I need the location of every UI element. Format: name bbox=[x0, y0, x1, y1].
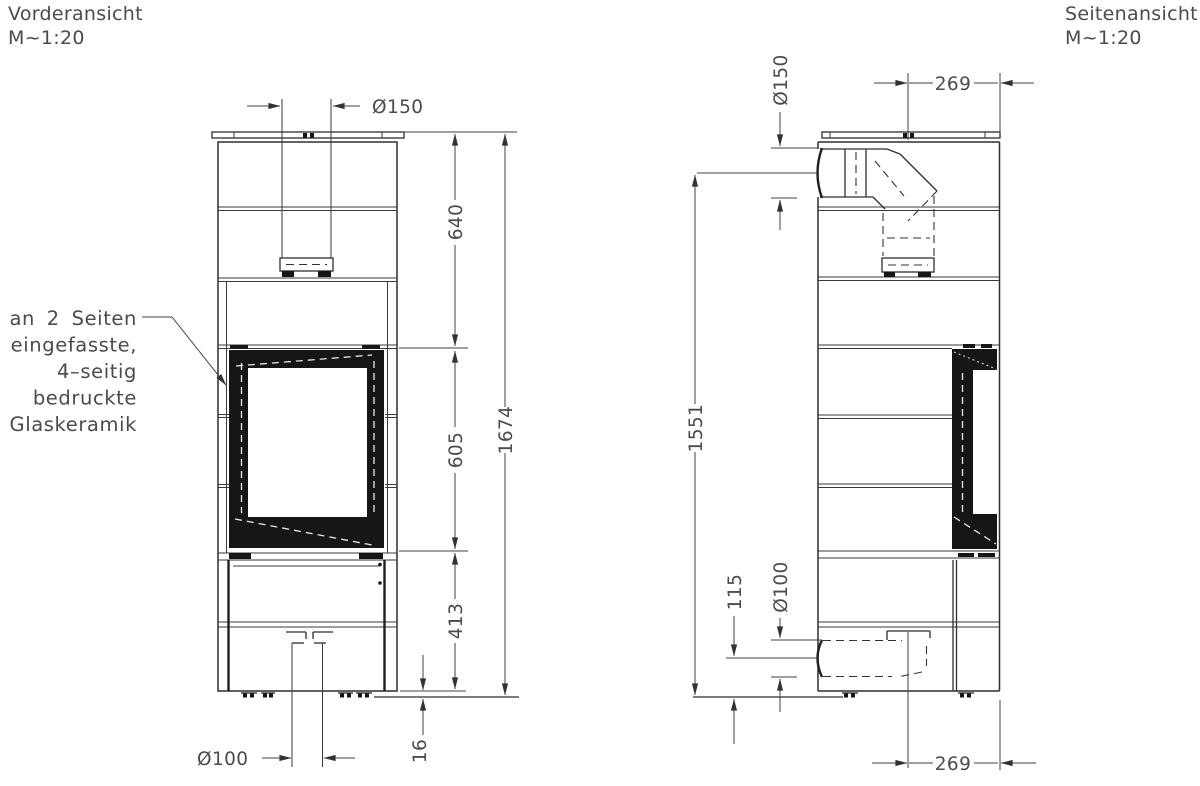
front-dim-flue-diameter: Ø150 bbox=[372, 97, 423, 118]
side-dim-air-inlet-center-height: 115 bbox=[725, 574, 746, 611]
front-dim-lower-section: 413 bbox=[446, 603, 467, 640]
side-dim-flue-diameter: Ø150 bbox=[771, 54, 792, 105]
front-dim-air-inlet-diameter: Ø100 bbox=[197, 749, 248, 770]
side-glass-band bbox=[952, 344, 997, 557]
side-flue-pipe bbox=[818, 148, 938, 277]
front-air-inlet bbox=[286, 632, 333, 767]
side-view-title: Seitenansicht M~1:20 bbox=[1065, 3, 1198, 49]
annotation-leader-line bbox=[142, 317, 226, 385]
front-title: Vorderansicht bbox=[8, 3, 143, 25]
annotation-line-5: Glaskeramik bbox=[9, 413, 137, 436]
side-dim-flue-center-to-front: 269 bbox=[935, 74, 972, 95]
front-annotation: an 2 Seiten eingefasste, 4–seitig bedruc… bbox=[9, 307, 226, 436]
front-view-title: Vorderansicht M~1:20 bbox=[8, 3, 143, 49]
front-flue-stub bbox=[280, 99, 333, 277]
stove-technical-drawing: Vorderansicht M~1:20 bbox=[0, 0, 1200, 786]
front-dim-foot-height: 16 bbox=[410, 739, 431, 763]
annotation-line-4: bedruckte bbox=[33, 387, 137, 410]
front-feet bbox=[241, 693, 372, 698]
side-dim-air-center-to-front: 269 bbox=[935, 754, 972, 775]
front-dim-total-height: 1674 bbox=[496, 406, 517, 455]
annotation-line-2: eingefasste, bbox=[11, 334, 137, 357]
annotation-line-1: an 2 Seiten bbox=[9, 307, 137, 330]
front-dim-top-section: 640 bbox=[446, 204, 467, 241]
front-glass-window bbox=[229, 350, 384, 548]
side-dim-air-inlet-diameter: Ø100 bbox=[771, 561, 792, 612]
technical-drawing-page: Vorderansicht M~1:20 bbox=[0, 0, 1200, 786]
side-view: Seitenansicht M~1:20 bbox=[686, 3, 1198, 775]
annotation-line-3: 4–seitig bbox=[57, 360, 137, 383]
front-scale: M~1:20 bbox=[8, 27, 85, 49]
side-scale: M~1:20 bbox=[1065, 27, 1142, 49]
front-dim-window-height: 605 bbox=[446, 432, 467, 469]
side-air-inlet-pipe bbox=[818, 631, 931, 768]
side-title: Seitenansicht bbox=[1065, 3, 1198, 25]
front-view: Vorderansicht M~1:20 bbox=[8, 3, 519, 770]
side-dim-flue-center-height: 1551 bbox=[686, 404, 707, 453]
